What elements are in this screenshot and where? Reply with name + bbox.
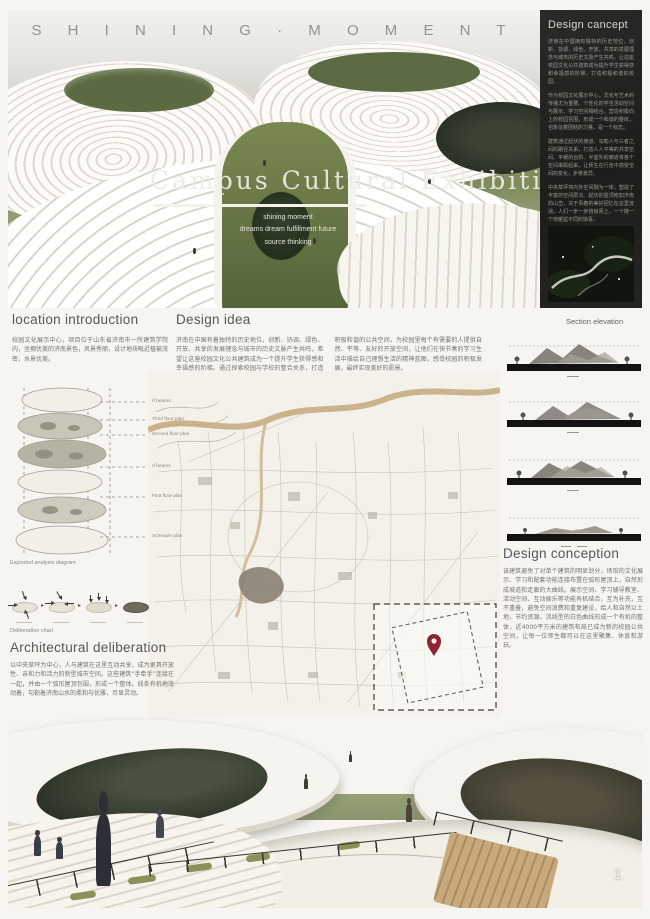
design-concept-paragraph: 中央草坪将内外空间融为一体，塑造了丰富的空间层次。起伏的屋顶宛如济南的山峦，关于…: [548, 184, 634, 224]
exploded-label: rf beams: [152, 399, 171, 404]
person-silhouette: [56, 842, 63, 859]
architectural-deliberation-body: 以中央草坪为中心，人与建筑在这里互动共享，成为更具开放性、亲和力和活力的新型城市…: [10, 661, 174, 698]
hero-subtitles: shining moment dreams dream fulfillment …: [168, 212, 408, 249]
site-square-dashed: [392, 612, 483, 703]
bottom-render-image: 1: [8, 716, 642, 908]
massing-step-1: [10, 595, 38, 617]
location-introduction-body: 校园文化展示中心，项目位于山东省济南市一所建筑学院内，坐拥优美的济南景色，风景秀…: [12, 336, 168, 364]
section-strip-3: [505, 450, 643, 494]
satellite-night-image: [548, 226, 634, 302]
section-strip-2: [505, 392, 643, 436]
city-map: [148, 372, 500, 716]
design-concept-paragraph: 济南在中国拥有独特的历史地位，创新、协调、绿色、开放、共享的发展理念与城市的历史…: [548, 38, 634, 86]
hero-subtitle-3: source thinking: [168, 237, 408, 249]
banner-title: S H I N I N G · M O M E N T: [8, 22, 540, 39]
green-roof-shape: [308, 52, 480, 92]
presentation-board: S H I N I N G · M O M E N T Campus Cultu…: [0, 0, 650, 919]
design-conception-body: 该建筑避免了对单个建筑的明显划分，场馆的文化展示、学习和配套功能连接布置在弧形屋…: [503, 567, 643, 651]
arrow-separator-icon: ▸: [78, 603, 81, 609]
exploded-label: Third floor plan: [152, 417, 184, 422]
design-idea-body: 济南在中国有着独特的历史地位，创新、协调、绿色、开放、共享的发展理念与城市的历史…: [176, 336, 482, 373]
page-number: 1: [614, 866, 622, 882]
exploded-label: First floor plan: [152, 494, 182, 499]
architectural-deliberation-heading: Architectural deliberation: [10, 640, 166, 655]
person-silhouette: [193, 248, 196, 254]
person-silhouette: [304, 778, 308, 789]
massing-step-2: [47, 595, 75, 617]
deliberation-chart: ▸ ▸ ▸: [10, 588, 168, 624]
arrow-separator-icon: ▸: [41, 603, 44, 609]
exploded-label: rf beams: [152, 464, 171, 469]
section-strip-4: [505, 506, 643, 550]
person-silhouette: [349, 754, 352, 762]
hero-render-image: S H I N I N G · M O M E N T Campus Cultu…: [8, 10, 540, 308]
hero-title: Campus Cultural Exhibition: [150, 166, 540, 195]
green-roof-shape: [64, 68, 214, 112]
person-silhouette: [96, 814, 111, 886]
massing-step-4: [121, 595, 149, 617]
deliberation-caption: Deliberation chart: [10, 628, 53, 634]
design-concept-paragraph: 作为校园文化展示中心，文化与艺术的传播尤为重要。个性化的学生活动空间与展示、学习…: [548, 92, 634, 132]
massing-step-3: [84, 595, 112, 617]
title-underline: [154, 204, 366, 207]
person-silhouette: [406, 804, 412, 822]
exploded-caption: Exploded analysis diagram: [10, 560, 76, 566]
location-introduction-heading: location introduction: [12, 312, 138, 327]
design-concept-panel: Design cancept 济南在中国拥有独特的历史地位，创新、协调、绿色、开…: [540, 10, 642, 308]
design-idea-heading: Design idea: [176, 312, 251, 327]
exploded-label: Second floor plan: [152, 432, 189, 437]
design-concept-paragraph: 建筑通过起伏的坡道，勾勒人与三者之间的路径关系，打造人人平等的共享空间。平缓的台…: [548, 138, 634, 178]
person-silhouette: [34, 836, 41, 856]
exploded-label: Schedule plan: [152, 534, 182, 539]
hero-subtitle-1: shining moment: [168, 212, 408, 224]
section-elevation-label: Section elevation: [566, 317, 623, 326]
design-conception-heading: Design conception: [503, 546, 619, 561]
exploded-analysis-diagram: [10, 382, 150, 560]
person-silhouette: [156, 816, 164, 838]
design-concept-heading: Design cancept: [548, 19, 634, 31]
hero-subtitle-2: dreams dream fulfillment future: [168, 224, 408, 236]
arrow-separator-icon: ▸: [115, 603, 118, 609]
section-strip-1: [505, 336, 643, 380]
